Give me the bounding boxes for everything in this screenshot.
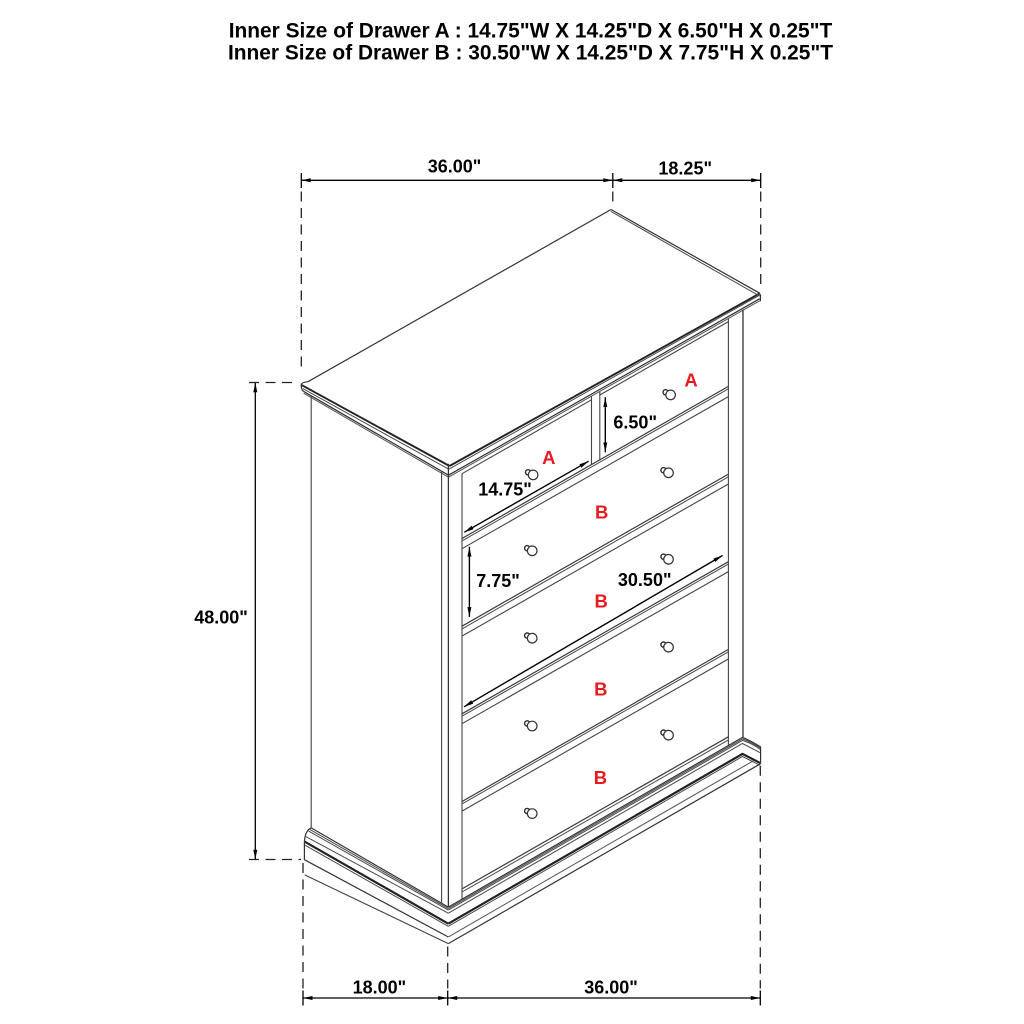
svg-text:36.00": 36.00" (584, 977, 638, 997)
svg-text:36.00": 36.00" (428, 157, 482, 177)
svg-text:14.75": 14.75" (478, 479, 532, 499)
svg-text:6.50": 6.50" (613, 413, 657, 433)
svg-text:30.50": 30.50" (618, 570, 672, 590)
svg-text:48.00": 48.00" (194, 607, 248, 627)
svg-text:7.75": 7.75" (476, 571, 520, 591)
svg-text:18.00": 18.00" (353, 977, 407, 997)
svg-text:B: B (595, 590, 608, 611)
svg-text:Inner Size of Drawer B : 30.50: Inner Size of Drawer B : 30.50"W X 14.25… (228, 42, 833, 65)
svg-text:B: B (594, 678, 607, 699)
svg-text:A: A (542, 447, 555, 468)
svg-text:B: B (594, 767, 607, 788)
svg-text:Inner Size of Drawer A : 14.75: Inner Size of Drawer A : 14.75"W X 14.25… (229, 19, 833, 42)
svg-text:B: B (595, 502, 608, 523)
svg-text:18.25": 18.25" (658, 158, 712, 178)
svg-text:A: A (684, 370, 697, 391)
